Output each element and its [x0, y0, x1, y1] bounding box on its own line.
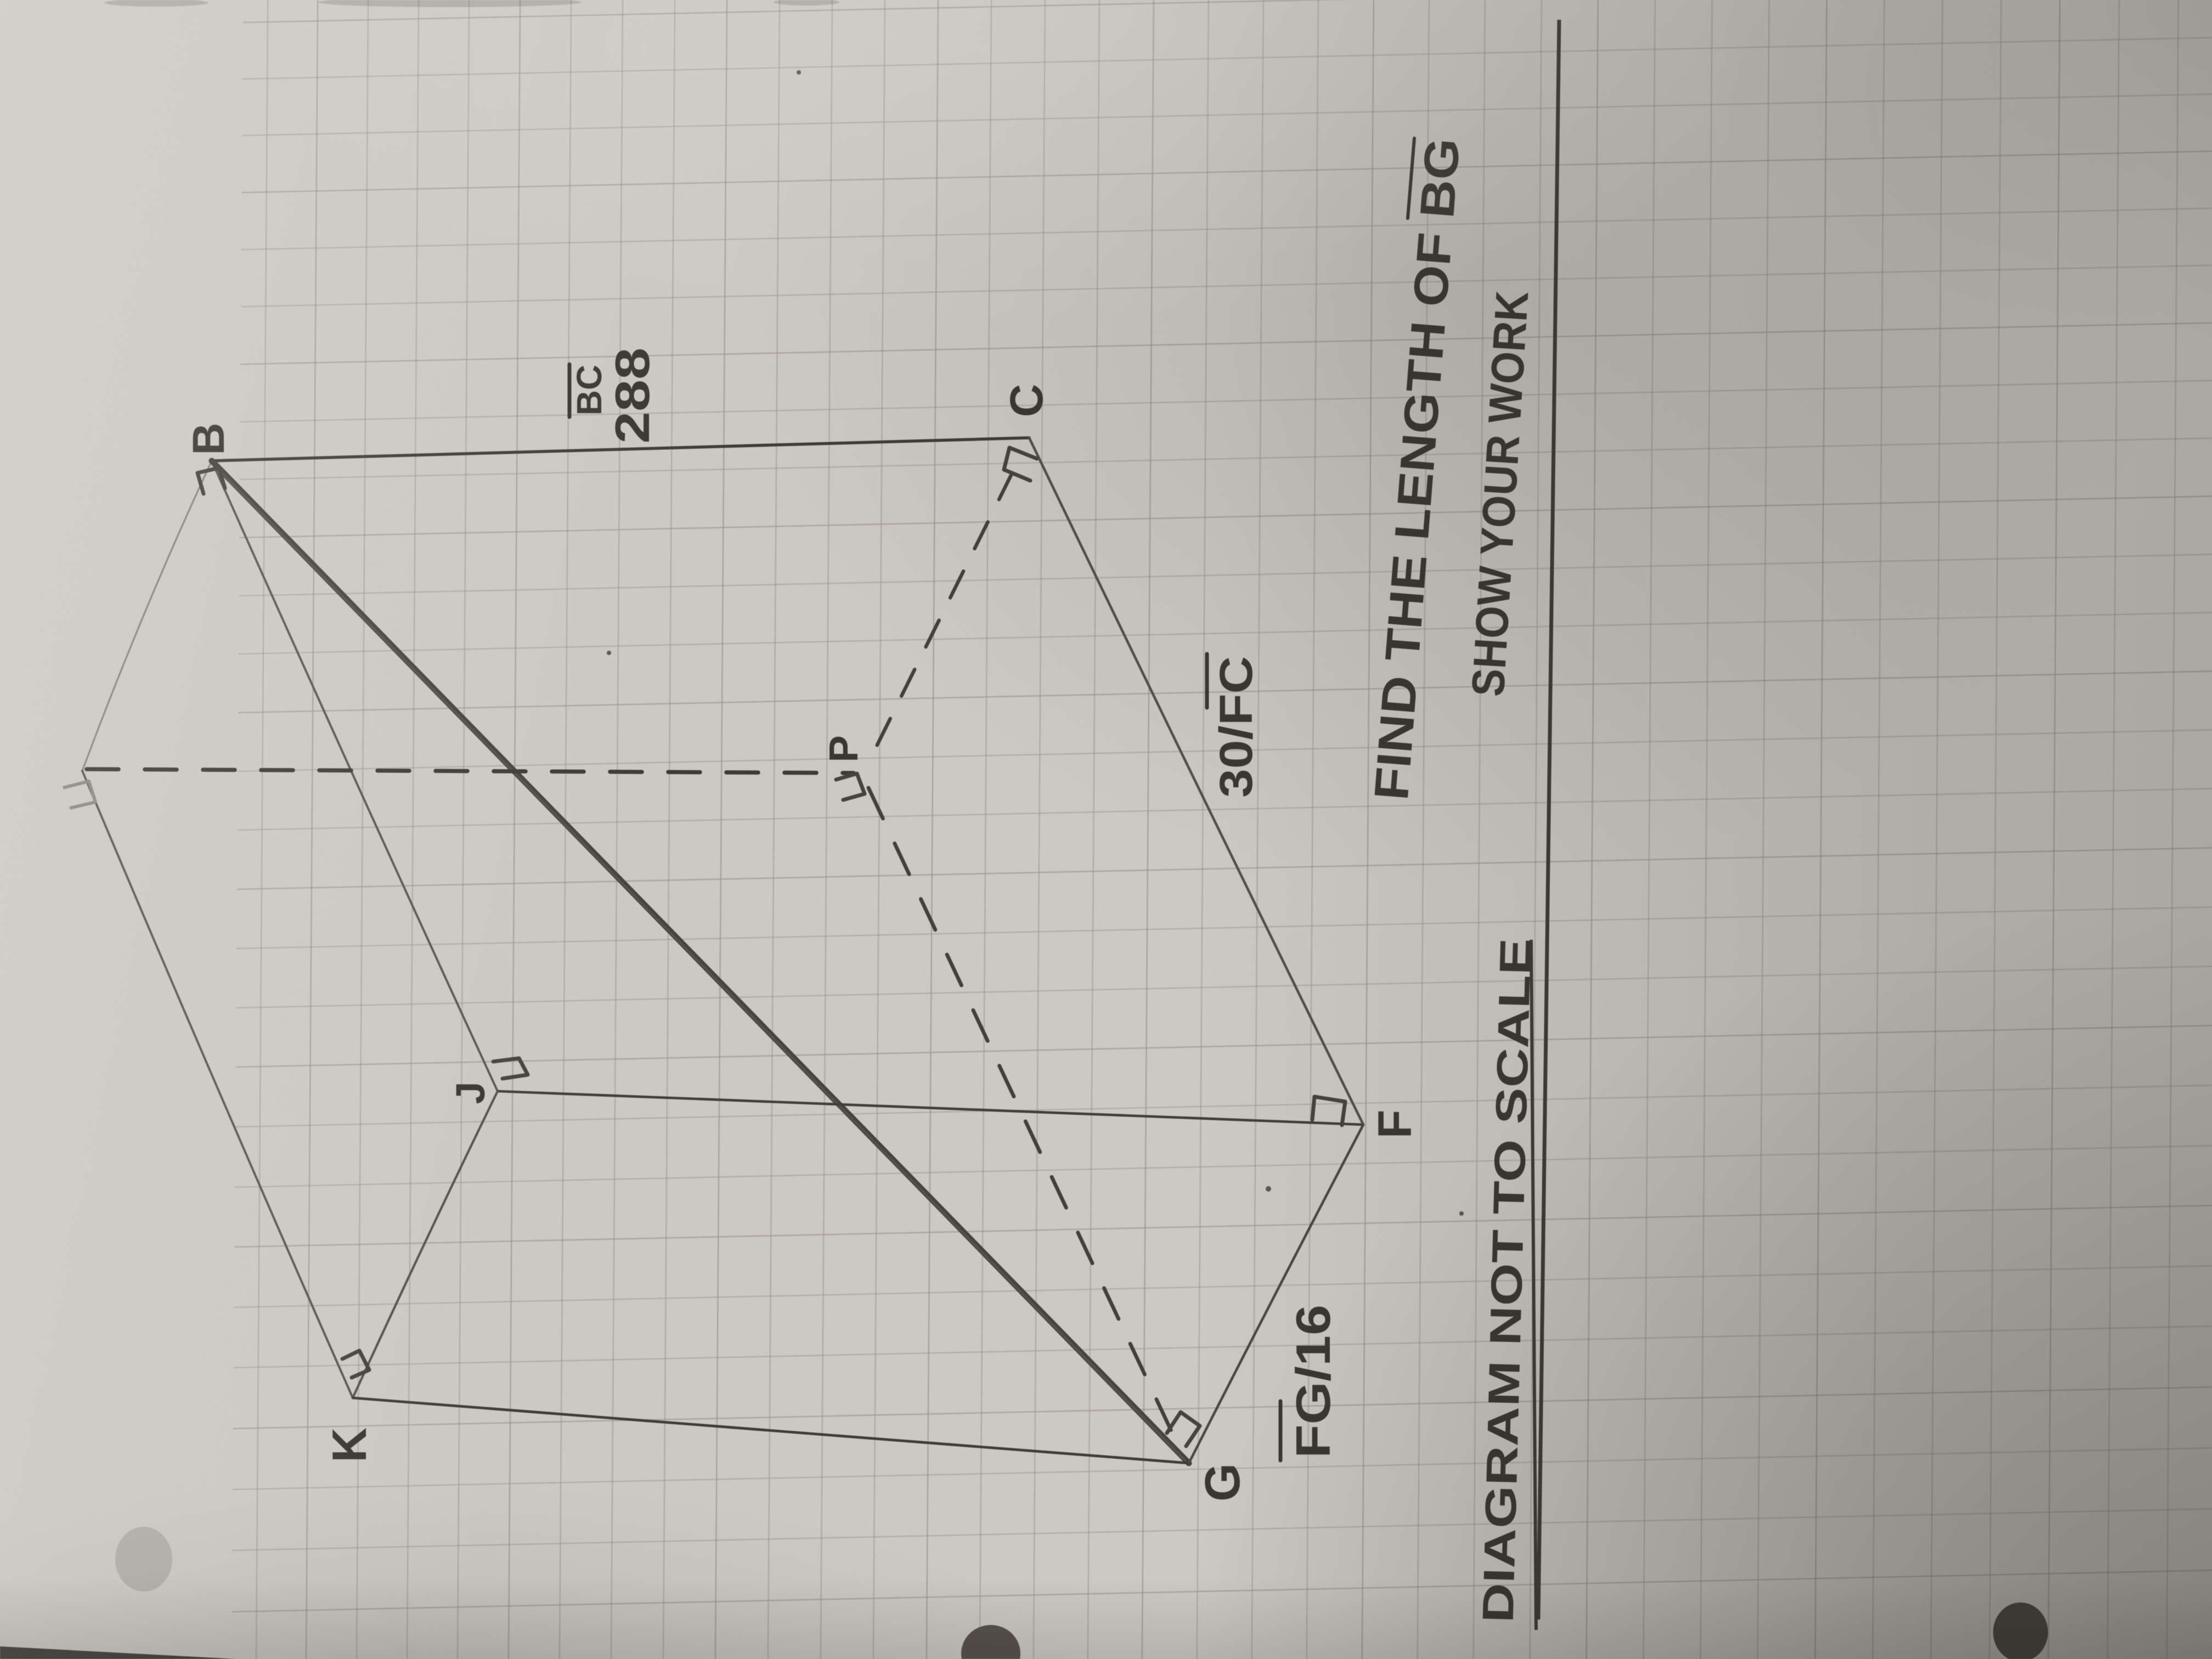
svg-text:J: J — [448, 1081, 493, 1104]
svg-text:B: B — [184, 422, 234, 455]
svg-text:P: P — [821, 735, 866, 762]
svg-text:C: C — [1001, 384, 1052, 417]
svg-text:30/FC: 30/FC — [1210, 656, 1262, 798]
svg-text:K: K — [322, 1427, 376, 1463]
svg-text:FG/16: FG/16 — [1286, 1305, 1340, 1458]
svg-text:F: F — [1369, 1110, 1421, 1139]
svg-text:288: 288 — [605, 348, 659, 444]
svg-text:G: G — [1195, 1463, 1250, 1502]
svg-text:BC: BC — [569, 365, 609, 415]
